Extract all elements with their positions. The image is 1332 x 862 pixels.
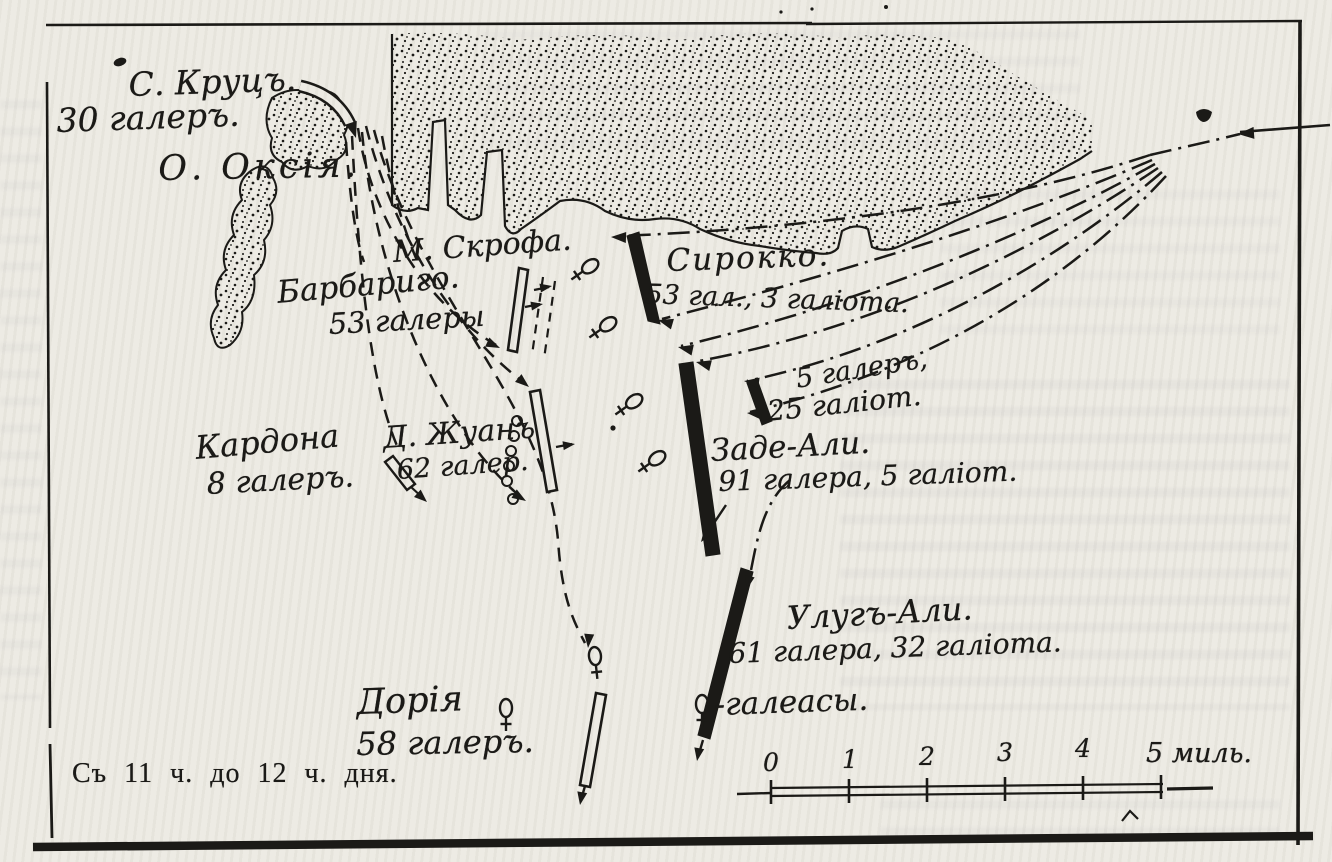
squadron-bar-barbarigo (508, 268, 555, 359)
label-doria-strength: 58 галеръ. (356, 725, 534, 760)
galleass-icon (612, 391, 645, 419)
time-caption: Съ 11 ч. до 12 ч. дня. (72, 760, 398, 788)
label-santa-cruz-strength: 30 галеръ. (56, 98, 240, 137)
galleass-icon (588, 646, 603, 679)
scale-bar (737, 775, 1213, 804)
squadron-bar-doria (580, 693, 606, 800)
coastline-mainland (392, 33, 1092, 254)
label-sirocco-name: Сирокко. (666, 240, 831, 277)
battle-map-page: С. Круцъ. 30 галеръ. О. Оксія. М. Скрофа… (0, 0, 1332, 862)
galleass-icon (586, 314, 619, 342)
scale-end-label: 5 миль. (1146, 740, 1252, 767)
scale-tick-2: 2 (919, 744, 935, 769)
label-doria-name: Дорія (356, 682, 463, 721)
galleass-icon (635, 448, 668, 476)
label-legend-galleass: -галеасы. (714, 685, 869, 721)
label-uluch-ali-name: Улугъ-Али. (786, 592, 973, 634)
scale-tick-3: 3 (997, 740, 1013, 765)
scale-tick-0: 0 (763, 750, 779, 775)
label-cardona-strength: 8 галеръ. (206, 462, 355, 500)
galleass-icons (500, 256, 708, 731)
scale-tick-4: 4 (1075, 736, 1091, 761)
label-barbarigo-strength: 53 галеры (328, 302, 485, 339)
scale-tick-1: 1 (842, 747, 858, 772)
label-island-oxia: О. Оксія. (158, 148, 360, 187)
galleass-icon (568, 256, 601, 284)
